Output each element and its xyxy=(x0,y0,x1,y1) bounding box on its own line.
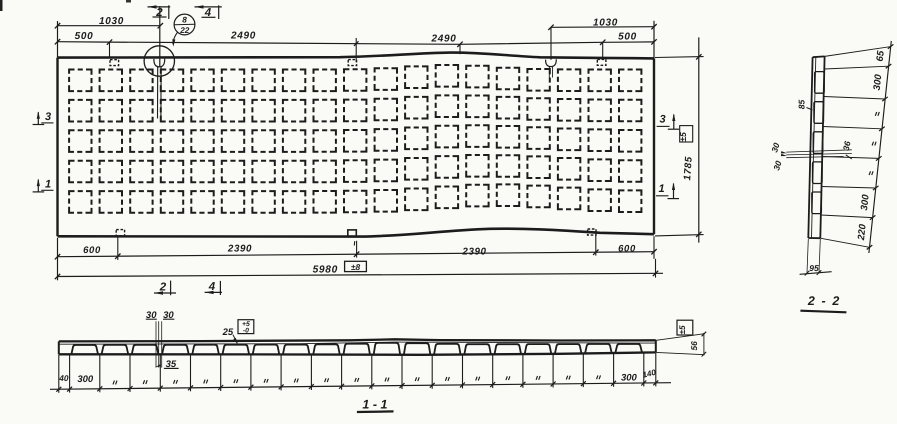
svg-text:2390: 2390 xyxy=(227,243,252,254)
svg-text:300: 300 xyxy=(859,193,872,211)
svg-text:500: 500 xyxy=(75,31,94,42)
svg-text:1 - 1: 1 - 1 xyxy=(362,397,387,411)
svg-text:2 - 2: 2 - 2 xyxy=(807,294,841,308)
svg-text:±5: ±5 xyxy=(678,325,687,334)
svg-text:600: 600 xyxy=(618,244,636,255)
svg-text:22: 22 xyxy=(179,26,190,35)
svg-text:8: 8 xyxy=(182,16,187,25)
svg-text:2490: 2490 xyxy=(430,33,456,44)
svg-text:5980: 5980 xyxy=(313,265,338,276)
svg-text:25: 25 xyxy=(222,327,234,338)
svg-text:95: 95 xyxy=(809,263,819,273)
svg-text:300: 300 xyxy=(872,73,885,91)
svg-text:600: 600 xyxy=(83,245,101,256)
svg-text:±5: ±5 xyxy=(678,132,688,142)
svg-text:56: 56 xyxy=(689,341,699,351)
svg-text:300: 300 xyxy=(77,374,94,385)
svg-text:1: 1 xyxy=(45,179,51,191)
svg-text:40: 40 xyxy=(58,373,69,383)
svg-text:1: 1 xyxy=(658,183,664,195)
svg-text:500: 500 xyxy=(618,31,637,42)
svg-text:3: 3 xyxy=(45,111,51,123)
svg-text:-0: -0 xyxy=(243,328,249,335)
svg-text:3: 3 xyxy=(659,114,665,126)
svg-text:300: 300 xyxy=(621,373,638,384)
svg-text:1030: 1030 xyxy=(593,17,618,28)
svg-text:65: 65 xyxy=(875,50,887,62)
svg-text:220: 220 xyxy=(856,223,869,242)
svg-text:1785: 1785 xyxy=(682,156,695,181)
svg-text:1030: 1030 xyxy=(99,16,124,27)
svg-text:2390: 2390 xyxy=(461,247,486,258)
svg-text:2490: 2490 xyxy=(230,31,256,42)
svg-text:85: 85 xyxy=(797,100,807,110)
svg-text:±8: ±8 xyxy=(351,262,361,272)
